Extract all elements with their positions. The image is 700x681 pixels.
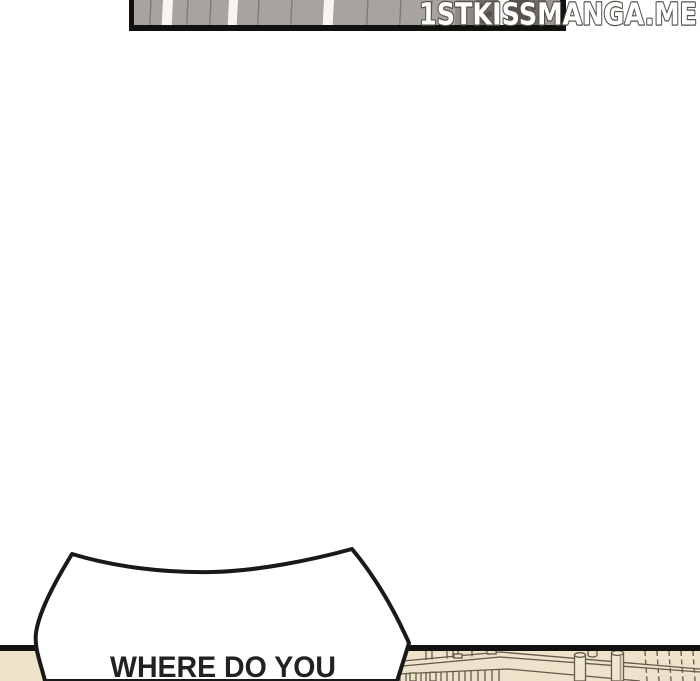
manga-page: 1STKISSMANGA.ME	[0, 0, 700, 681]
fence-planks	[134, 0, 560, 25]
top-panel-artwork	[129, 0, 566, 31]
speech-bubble-text: WHERE DO YOU	[104, 651, 342, 681]
